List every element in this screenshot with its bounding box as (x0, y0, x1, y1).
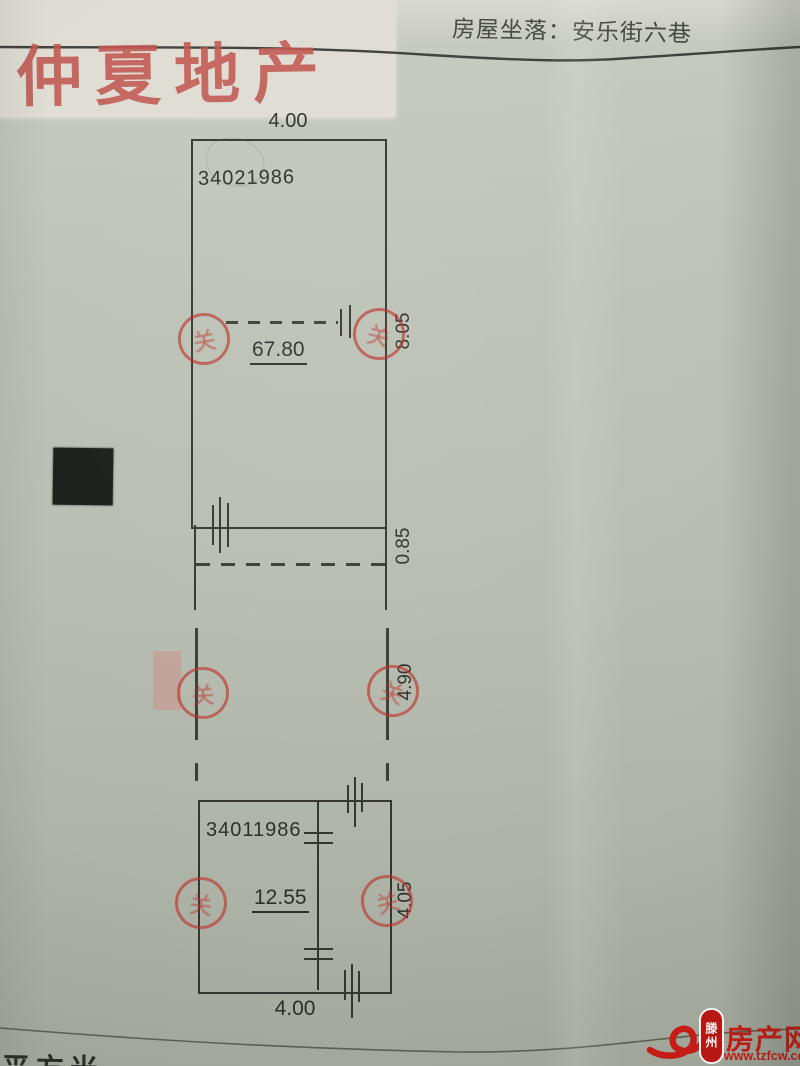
dim-width-top: 4.00 (248, 110, 328, 133)
agency-watermark: 仲夏地产 (15, 20, 332, 120)
survey-tick (349, 305, 351, 338)
window-symbol (347, 785, 349, 813)
wall-left-extension (194, 525, 196, 610)
redaction-block (53, 448, 114, 506)
upper-area-value: 67.80 (250, 338, 307, 365)
lower-area-value: 12.55 (252, 886, 309, 913)
partial-text-sqm: 平方米 (2, 1046, 104, 1066)
window-symbol (227, 503, 229, 547)
window-symbol (358, 971, 360, 1002)
logo-site-url: www.tzfcw.com.cn (724, 1049, 800, 1063)
boundary-dash-left (195, 763, 198, 781)
door-symbol (304, 832, 333, 834)
logo-swoosh-icon (646, 1016, 704, 1062)
door-symbol (304, 948, 333, 950)
window-symbol (351, 964, 353, 1018)
lower-serial-number: 34011986 (206, 819, 302, 842)
window-symbol (354, 777, 356, 827)
dim-strip: 0.85 (393, 511, 415, 581)
logo-city-seal: 滕州 (699, 1008, 724, 1064)
window-symbol (344, 970, 346, 1000)
window-symbol (361, 783, 363, 812)
door-symbol (304, 842, 333, 844)
site-logo: 滕州 房产网 www.tzfcw.com.cn (644, 1004, 800, 1066)
upper-serial-number: 34021986 (198, 166, 295, 191)
door-symbol (304, 958, 333, 960)
document-photo: 仲夏地产 房屋坐落：安乐街六巷 4.00 34021986 67.80 8.05… (0, 0, 800, 1066)
watermark-fragment (153, 651, 181, 710)
red-seal: 关 (172, 874, 229, 931)
house-location-label: 房屋坐落：安乐街六巷 (452, 9, 693, 48)
boundary-dash-right (386, 763, 389, 781)
dim-width-bottom: 4.00 (255, 997, 335, 1021)
survey-dashed-line (226, 321, 338, 324)
survey-tick (340, 309, 342, 336)
red-seal: 关 (175, 665, 231, 721)
window-symbol (219, 497, 221, 553)
interior-wall (317, 800, 319, 990)
wall-right-extension (385, 525, 387, 610)
window-symbol (212, 505, 214, 545)
eave-dashed-line (196, 563, 387, 566)
